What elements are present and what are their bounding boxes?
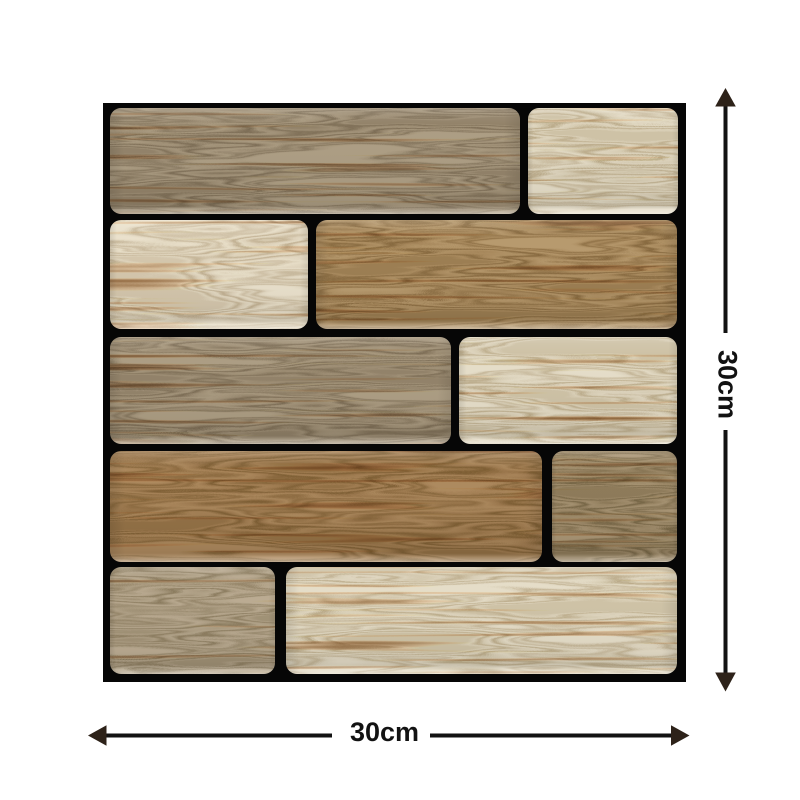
svg-text:30cm: 30cm [350, 717, 419, 747]
svg-text:30cm: 30cm [713, 350, 743, 419]
